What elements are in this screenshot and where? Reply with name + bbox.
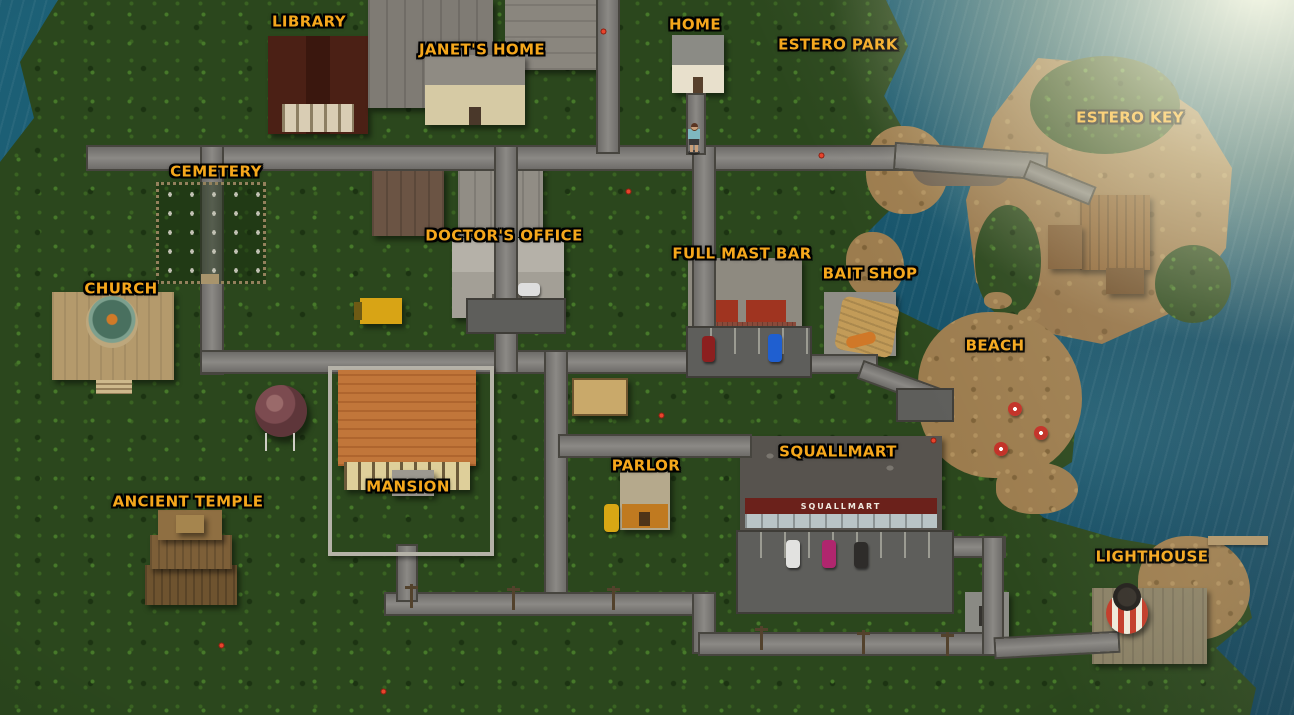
building-janets-home xyxy=(425,55,525,125)
map-label-full-mast-bar[interactable]: Full Mast Bar xyxy=(672,247,811,262)
utility-pole xyxy=(946,632,949,656)
road-south-east-west xyxy=(386,594,708,614)
temple-base xyxy=(145,565,237,605)
islet-1 xyxy=(984,292,1012,309)
map-label-janets-home[interactable]: Janet's Home xyxy=(419,43,545,58)
market-stand xyxy=(572,378,628,416)
estero-key-hut xyxy=(1106,268,1144,294)
beach-parasol-1 xyxy=(1008,402,1022,416)
map-label-library[interactable]: Library xyxy=(272,15,346,30)
magenta-car xyxy=(822,540,836,568)
white-car-squallmart xyxy=(786,540,800,568)
utility-pole xyxy=(760,626,763,650)
squallmart-parking xyxy=(738,532,952,612)
bulldozer xyxy=(360,298,402,324)
utility-pole xyxy=(410,584,413,608)
black-car xyxy=(854,542,868,568)
road-parlor-vertical xyxy=(546,352,566,610)
map-label-bait-shop[interactable]: Bait Shop xyxy=(823,267,918,282)
beach-parasol-2 xyxy=(1034,426,1048,440)
blue-car xyxy=(768,334,782,362)
map-label-mansion[interactable]: Mansion xyxy=(366,480,450,495)
utility-pole xyxy=(512,586,515,610)
map-label-ancient-temple[interactable]: Ancient Temple xyxy=(113,495,264,510)
church-dome-icon xyxy=(86,296,138,348)
building-library xyxy=(268,36,368,134)
map-label-beach[interactable]: Beach xyxy=(966,339,1025,354)
map-label-estero-park[interactable]: Estero Park xyxy=(778,38,898,53)
building-mansion xyxy=(338,370,476,466)
map-label-cemetery[interactable]: Cemetery xyxy=(170,165,262,180)
building-bait-shop xyxy=(824,292,896,356)
flower-bush xyxy=(930,437,937,444)
road-squallmart-west xyxy=(560,436,750,456)
estero-key-palms xyxy=(1030,56,1180,154)
south-beach-sand xyxy=(996,462,1078,514)
temple-crown xyxy=(176,515,204,533)
flower-bush xyxy=(380,688,387,695)
pier xyxy=(1208,536,1268,545)
town-map: SQUALLMART LibraryJanet's Hom xyxy=(0,0,1294,715)
squallmart-sign: SQUALLMART xyxy=(745,500,937,514)
lighthouse-lantern xyxy=(1113,583,1141,611)
estero-key-palms-south xyxy=(1155,245,1231,323)
estero-key-lodge xyxy=(1080,195,1150,270)
map-label-squallmart[interactable]: Squallmart xyxy=(779,445,897,460)
cemetery-grounds xyxy=(156,182,266,284)
flower-bush xyxy=(625,188,632,195)
temple-mid xyxy=(150,535,232,569)
map-label-parlor[interactable]: Parlor xyxy=(612,459,681,474)
player-hair xyxy=(691,123,698,127)
water-tower xyxy=(255,385,307,437)
white-car xyxy=(518,283,540,296)
road-gate-vertical xyxy=(984,538,1002,654)
map-label-estero-key[interactable]: Estero Key xyxy=(1076,111,1184,126)
red-car xyxy=(702,336,715,362)
building-parlor xyxy=(620,466,670,530)
map-label-home[interactable]: Home xyxy=(669,18,721,33)
doctors-parking xyxy=(468,300,564,332)
flower-bush xyxy=(658,412,665,419)
player-character xyxy=(686,124,702,158)
beach-parasol-3 xyxy=(994,442,1008,456)
road-north-vertical xyxy=(598,0,618,152)
map-label-church[interactable]: Church xyxy=(84,282,157,297)
map-label-doctors-office[interactable]: Doctor's Office xyxy=(425,229,582,244)
map-label-lighthouse[interactable]: Lighthouse xyxy=(1096,550,1209,565)
islet-2 xyxy=(1018,309,1040,322)
building-church xyxy=(52,292,174,380)
building-home xyxy=(672,35,724,93)
utility-pole xyxy=(612,586,615,610)
estero-key-annex xyxy=(1048,225,1082,269)
road-doctors-vertical xyxy=(496,147,516,372)
utility-pole xyxy=(862,630,865,654)
flower-bush xyxy=(818,152,825,159)
yellow-car xyxy=(604,504,619,532)
beach-parking xyxy=(898,390,952,420)
flower-bush xyxy=(600,28,607,35)
flower-bush xyxy=(218,642,225,649)
